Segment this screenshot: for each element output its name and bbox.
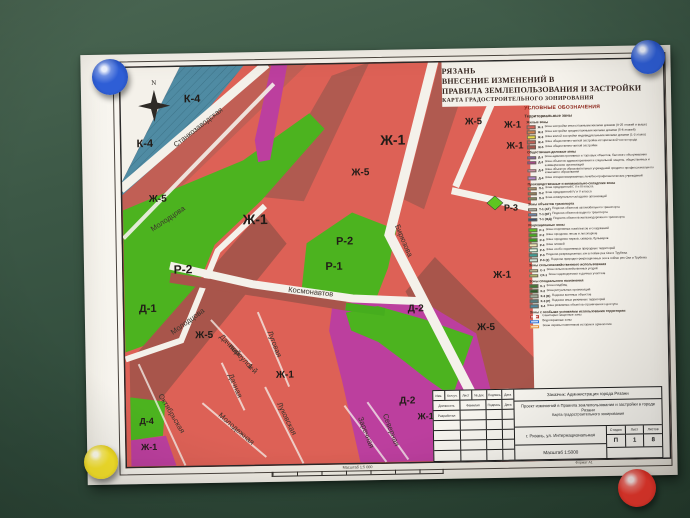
legend-zone-code: П-2 <box>539 191 544 195</box>
legend-swatch <box>528 197 537 201</box>
legend-zone-code: Д-3 <box>538 168 543 172</box>
legend-title: УСЛОВНЫЕ ОБОЗНАЧЕНИЯ <box>524 103 654 111</box>
legend-zone-code: Ж-1 <box>538 125 544 129</box>
zone-label: Ж-1 <box>503 119 522 130</box>
legend-zone-code: Д-1 <box>538 155 543 159</box>
legend-swatch <box>527 145 536 149</box>
legend-zone-code: Р-3 <box>540 238 545 242</box>
stamp-stage-label: Стадия <box>607 426 626 434</box>
map-title: РЯЗАНЬ ВНЕСЕНИЕ ИЗМЕНЕНИЙ В ПРАВИЛА ЗЕМЛ… <box>442 63 658 105</box>
legend-swatch <box>530 305 539 309</box>
legend-swatch <box>527 130 536 134</box>
legend-zone-label: Зона общественно-жилой застройки <box>545 144 597 148</box>
stamp-col-koluch: Кол.уч. <box>445 391 460 400</box>
legend-zone-code: Т-1 (ВТ) <box>539 212 551 216</box>
zone-label: Д-1 <box>139 303 157 315</box>
legend-swatch <box>529 238 538 242</box>
legend-swatch <box>527 140 536 144</box>
legend-swatch <box>527 161 536 165</box>
legend-swatch <box>528 228 537 232</box>
stamp-sheet-label: Лист <box>626 425 645 433</box>
zone-label: Ж-1 <box>492 270 512 281</box>
legend-zone-label: Зона коммунально-складских организаций <box>545 195 607 199</box>
legend-zone-code: Т-1 (ЖД) <box>539 217 552 221</box>
legend-swatch <box>530 320 539 324</box>
legend-zone-code: П-3 <box>539 196 544 200</box>
legend-zone-label: Зона режимных объектов ограниченного дос… <box>547 303 618 308</box>
magnet-red-bottom-right <box>618 469 656 507</box>
zone-label: Д-4 <box>139 416 154 426</box>
zone-label: Ж-1 <box>140 442 157 452</box>
legend-zone-code: Р-5 <box>540 248 545 252</box>
stamp-revision-table: Изм. Кол.уч. Лист № док. Подпись Дата До… <box>433 390 515 461</box>
zone-label: К-4 <box>137 138 155 150</box>
legend-zone-label: Зона садоводческих и дачных участков <box>549 272 606 276</box>
zone-label: Ж-5 <box>476 322 496 333</box>
stamp-sheets-value: 8 <box>644 434 662 446</box>
legend-zone-code: П-1 <box>539 186 544 190</box>
legend-swatch <box>529 243 538 247</box>
legend-zone-label: Зона специализированных лечебно-профилак… <box>545 174 643 179</box>
legend-swatch <box>529 258 538 262</box>
legend-zone-code: К-4 <box>541 304 546 308</box>
stamp-razrabotal: Разработал <box>434 411 461 420</box>
legend-zone-label: Зона пляжей <box>546 242 565 246</box>
stamp-sheet-value: 1 <box>626 434 645 446</box>
legend-zone-label: Зона кладбищ <box>546 283 567 287</box>
stamp-col-dok: № док. <box>472 390 487 399</box>
legend-zone-label: Зоны охраны памятников истории и археоло… <box>543 323 612 328</box>
zone-label: Р-2 <box>174 262 193 276</box>
legend-swatch <box>529 248 538 252</box>
legend-swatch <box>529 274 538 278</box>
legend-zone-code: Ж-3 <box>538 135 544 139</box>
scale-bar: Масштаб 1:5 000 <box>272 464 444 477</box>
legend-swatch <box>529 269 538 273</box>
stamp-col-data: Дата <box>502 390 513 399</box>
legend-swatch <box>529 290 538 294</box>
legend-swatch <box>527 177 536 181</box>
zone-label: Ж-5 <box>350 167 370 178</box>
legend-swatch <box>527 135 536 139</box>
legend-swatch <box>529 285 538 289</box>
zone-label: Д-2 <box>399 395 416 406</box>
stamp-podpis2: Подпись <box>486 400 502 409</box>
legend-zone-code: Ж-4 <box>538 140 544 144</box>
zone-label: Ж-1 <box>416 411 433 421</box>
zone-label: Р-2 <box>336 235 353 247</box>
legend-panel: УСЛОВНЫЕ ОБОЗНАЧЕНИЯ Территориальные зон… <box>524 103 659 386</box>
zone-label: Ж-1 <box>379 132 406 148</box>
stamp-signature-area <box>607 447 662 458</box>
format-note: Формат А1 <box>575 460 592 464</box>
magnet-blue-top-right <box>631 40 665 74</box>
legend-zone-code: СХ-1 <box>540 273 547 277</box>
legend-zone-label: Зона спортивных комплексов и сооружений <box>546 227 609 231</box>
legend-zone-code: Р-2 <box>539 233 544 237</box>
legend-zone-code: Т-1 (АТ) <box>539 207 551 211</box>
stamp-col-podpis: Подпись <box>487 390 502 399</box>
legend-zone-label: Зона городских парков, скверов, бульваро… <box>546 237 609 241</box>
stamp-scale: Масштаб 1:5000 <box>515 444 606 460</box>
legend-swatch <box>530 295 539 299</box>
zone-label: Д-2 <box>408 303 425 314</box>
legend-swatch <box>528 218 537 222</box>
legend-zone-code: С-1 <box>540 268 545 272</box>
stamp-stage-value: П <box>607 435 626 447</box>
stamp-col-list: Лист <box>460 390 472 399</box>
magnet-blue-top-left <box>92 59 128 95</box>
magnet-yellow-bottom-left <box>84 445 118 479</box>
zone-label: Р-1 <box>325 261 342 273</box>
legend-zone-code: Д-2 <box>538 160 543 164</box>
zone-label: Ж-5 <box>194 330 214 341</box>
stamp-familia: Фамилия <box>460 400 486 409</box>
legend-swatch <box>528 192 537 196</box>
legend-swatch <box>529 253 538 257</box>
legend-swatch <box>530 300 539 304</box>
legend-swatch <box>528 233 537 237</box>
stamp-project: Проект изменений в Правила землепользова… <box>514 399 661 428</box>
zone-label: Ж-5 <box>464 116 483 127</box>
zone-label: К-4 <box>184 93 202 105</box>
legend-swatch <box>528 208 537 212</box>
legend-zone-code: К-2 <box>540 289 545 293</box>
zoning-map-sheet: N СтанкозаводскаяМолодцоваМолодцоваКосмо… <box>80 45 677 485</box>
legend-swatch <box>527 169 536 173</box>
legend-zone-code: Р-1 <box>539 228 544 232</box>
stamp-col-izm: Изм. <box>433 391 445 400</box>
stamp-dolzhnost: Должность <box>433 401 460 410</box>
legend-swatch <box>527 156 536 160</box>
legend-zone-code: К-3 (В) <box>541 294 551 298</box>
legend-swatch <box>528 187 537 191</box>
legend-zone-code: Р-6 <box>540 253 545 257</box>
legend-swatch <box>527 125 536 129</box>
zone-label: Ж-1 <box>505 140 524 151</box>
legend-zone-code: Ж-5 <box>538 145 544 149</box>
title-block-stamp: Изм. Кол.уч. Лист № док. Подпись Дата До… <box>432 386 663 462</box>
zone-label: Ж-1 <box>241 211 268 227</box>
legend-zone-code: Д-4 <box>538 176 543 180</box>
zone-label: Ж-1 <box>275 369 295 380</box>
stamp-address: г. Рязань, ул. Интернациональная <box>515 426 606 446</box>
legend-zone-code: Ж-2 <box>538 130 544 134</box>
legend-zone-code: К-1 <box>540 284 545 288</box>
stamp-sheets-label: Листов <box>644 425 662 433</box>
legend-zone-code: Р-4 <box>540 243 545 247</box>
zone-label: Ж-5 <box>148 194 168 205</box>
north-label: N <box>151 79 156 87</box>
legend-zone-label: Подзона природно-рекреационных зон в пой… <box>551 256 647 261</box>
zone-label: Р-3 <box>504 203 518 213</box>
legend-swatch <box>528 213 537 217</box>
legend-swatch <box>530 325 539 329</box>
legend-zone-label: Подзона объектов железнодорожного трансп… <box>553 216 624 221</box>
stamp-data2: Дата <box>502 400 513 409</box>
legend-zone-code: Р-6 (2) <box>540 258 550 262</box>
stamp-doc-name: Карта градостроительного зонирования <box>518 411 659 418</box>
legend-item: Зоны охраны памятников истории и археоло… <box>528 322 658 328</box>
legend-swatch <box>530 315 539 319</box>
legend-items: Жилые зоныЖ-1Зона застройки многоэтажным… <box>524 118 658 329</box>
